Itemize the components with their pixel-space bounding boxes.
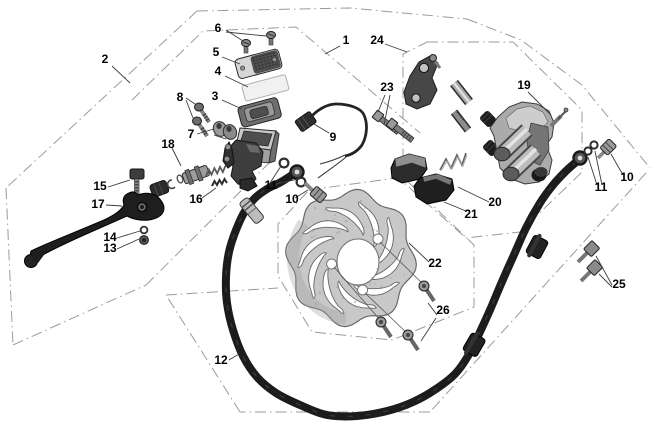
svg-text:24: 24 [370,33,384,47]
svg-text:19: 19 [517,78,531,92]
svg-text:11: 11 [595,180,608,194]
svg-text:15: 15 [93,179,107,193]
svg-text:21: 21 [464,207,478,221]
svg-text:18: 18 [161,137,175,151]
svg-text:1: 1 [343,33,350,47]
svg-text:7: 7 [188,127,195,141]
svg-text:26: 26 [436,303,450,317]
svg-text:6: 6 [215,21,222,35]
svg-text:25: 25 [612,277,626,291]
svg-text:11: 11 [265,178,278,192]
svg-text:23: 23 [380,80,394,94]
svg-text:4: 4 [215,64,222,78]
svg-text:10: 10 [620,170,634,184]
svg-text:3: 3 [212,89,219,103]
svg-text:9: 9 [330,130,337,144]
svg-text:5: 5 [213,45,220,59]
svg-text:22: 22 [428,256,442,270]
svg-text:8: 8 [177,90,184,104]
svg-text:20: 20 [488,195,502,209]
svg-text:16: 16 [189,192,203,206]
svg-text:12: 12 [214,353,228,367]
svg-text:10: 10 [285,192,299,206]
svg-text:17: 17 [91,197,105,211]
svg-text:13: 13 [103,241,117,255]
svg-text:2: 2 [102,52,109,66]
